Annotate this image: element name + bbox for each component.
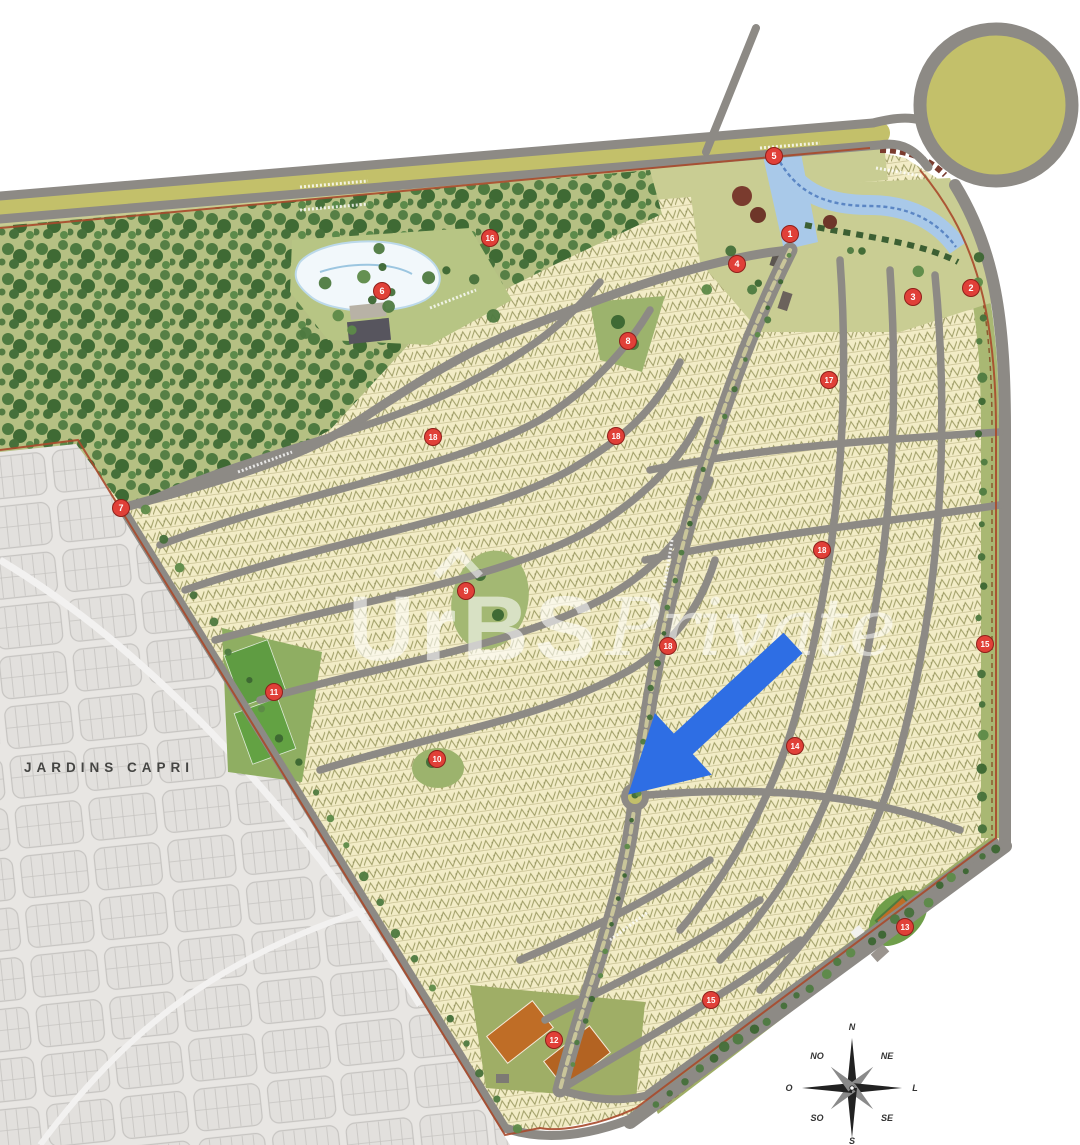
map-marker: 12 — [546, 1032, 563, 1049]
marker-number: 15 — [707, 996, 716, 1005]
compass-point-label: SO — [810, 1113, 823, 1123]
marker-number: 6 — [379, 286, 384, 296]
marker-number: 14 — [791, 742, 800, 751]
map-marker: 8 — [620, 333, 637, 350]
map-marker: 4 — [729, 256, 746, 273]
map-marker: 6 — [374, 283, 391, 300]
marker-number: 3 — [910, 292, 915, 302]
watermark-brand: UrBS — [348, 578, 602, 680]
watermark-script: Private — [604, 581, 896, 674]
map-marker: 16 — [482, 230, 499, 247]
marker-number: 17 — [825, 376, 834, 385]
marker-number: 7 — [118, 503, 123, 513]
marker-number: 1 — [787, 229, 792, 239]
masterplan-map: UrBS Private 514166328171818718915181114… — [0, 0, 1080, 1145]
compass-point-label: N — [849, 1022, 856, 1032]
marker-number: 12 — [550, 1036, 559, 1045]
marker-number: 4 — [734, 259, 739, 269]
map-marker: 13 — [897, 919, 914, 936]
compass-point-label: NE — [881, 1051, 894, 1061]
compass-point-label: SE — [881, 1113, 894, 1123]
marker-number: 11 — [270, 688, 279, 697]
map-marker: 3 — [905, 289, 922, 306]
map-marker: 18 — [814, 542, 831, 559]
compass-point-label: S — [849, 1136, 855, 1145]
map-marker: 5 — [766, 148, 783, 165]
main-roundabout — [920, 29, 1072, 181]
compass-point-label: L — [912, 1083, 918, 1093]
marker-number: 18 — [818, 546, 827, 555]
map-marker: 18 — [425, 429, 442, 446]
marker-number: 13 — [901, 923, 910, 932]
map-marker: 18 — [660, 638, 677, 655]
map-marker: 9 — [458, 583, 475, 600]
map-marker: 14 — [787, 738, 804, 755]
map-marker: 1 — [782, 226, 799, 243]
map-marker: 7 — [113, 500, 130, 517]
compass-point-label: NO — [810, 1051, 824, 1061]
map-marker: 2 — [963, 280, 980, 297]
compass-point-label: O — [785, 1083, 792, 1093]
map-marker: 11 — [266, 684, 283, 701]
map-marker: 10 — [429, 751, 446, 768]
marker-number: 18 — [429, 433, 438, 442]
map-marker: 17 — [821, 372, 838, 389]
map-marker: 15 — [977, 636, 994, 653]
marker-number: 15 — [981, 640, 990, 649]
marker-number: 18 — [664, 642, 673, 651]
marker-number: 9 — [463, 586, 468, 596]
marker-number: 16 — [486, 234, 495, 243]
marker-number: 8 — [625, 336, 630, 346]
neighborhood-label: JARDINS CAPRI — [24, 760, 194, 775]
marker-number: 18 — [612, 432, 621, 441]
map-marker: 18 — [608, 428, 625, 445]
marker-number: 10 — [433, 755, 442, 764]
marker-number: 2 — [968, 283, 973, 293]
map-marker: 15 — [703, 992, 720, 1009]
marker-number: 5 — [771, 151, 776, 161]
